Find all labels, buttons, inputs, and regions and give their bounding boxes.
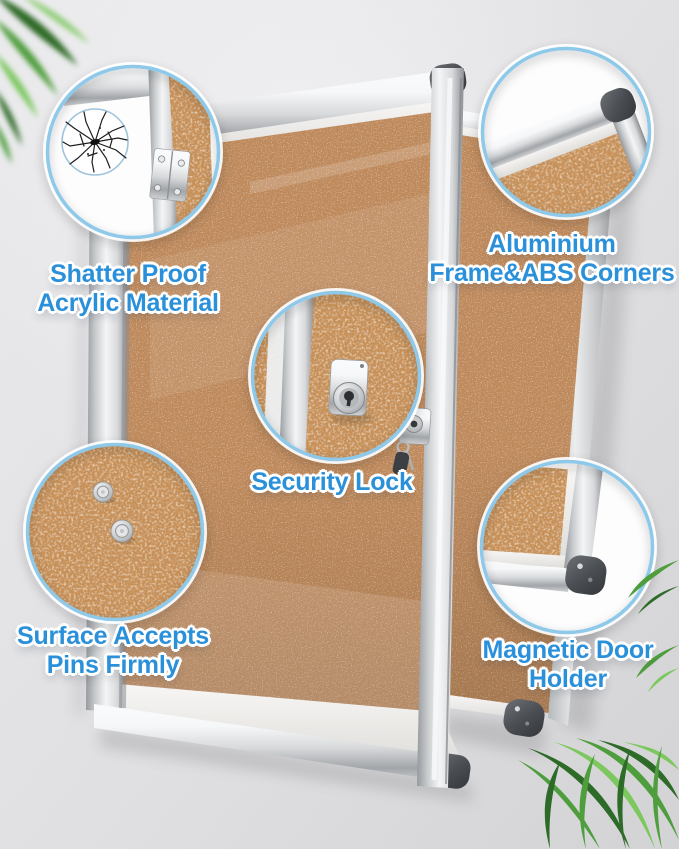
label-line: Pins Firmly: [17, 651, 209, 680]
label-security-lock: Security Lock: [251, 468, 412, 497]
product-illustration: [0, 0, 679, 849]
label-shatterproof: Shatter Proof Acrylic Material: [37, 260, 219, 318]
label-line: Aluminium: [429, 230, 674, 259]
label-line: Magnetic Door: [482, 636, 653, 665]
label-line: Security Lock: [251, 468, 412, 497]
label-line: Surface Accepts: [17, 622, 209, 651]
label-pin-surface: Surface Accepts Pins Firmly: [17, 622, 209, 680]
label-aluminium-frame: Aluminium Frame&ABS Corners: [429, 230, 674, 288]
label-magnetic-holder: Magnetic Door Holder: [482, 636, 653, 694]
label-line: Shatter Proof: [37, 260, 219, 289]
label-line: Frame&ABS Corners: [429, 259, 674, 288]
label-line: Holder: [482, 665, 653, 694]
product-image: Shatter Proof Acrylic Material Aluminium…: [0, 0, 679, 849]
label-line: Acrylic Material: [37, 289, 219, 318]
